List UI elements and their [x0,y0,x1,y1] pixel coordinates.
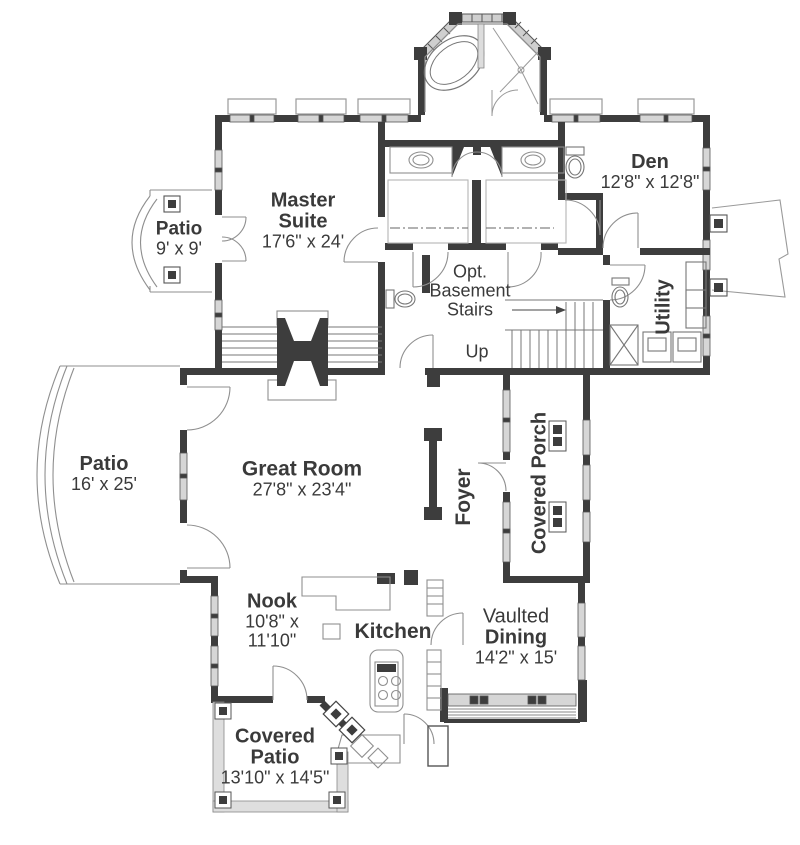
floor-plan: Patio 9' x 9' Master Suite 17'6" x 24' D… [0,0,800,845]
room-label-patio-large: Patio 16' x 25' [44,454,164,494]
entry-porch-structure [710,200,788,297]
stairs-up-label: Up [457,342,497,361]
room-label-dining: Vaulted Dining 14'2" x 15' [462,606,570,667]
room-label-opt-basement-stairs: Opt. Basement Stairs [422,262,518,319]
room-label-master-suite: Master Suite 17'6" x 24' [248,190,358,251]
room-label-covered-patio: Covered Patio 13'10" x 14'5" [209,726,341,787]
room-label-utility: Utility [653,279,674,335]
porch-posts [549,421,566,532]
floor-plan-drawing [0,0,800,845]
fireplace [222,311,382,400]
dining-deck-lines [448,709,576,718]
room-label-patio-small: Patio 9' x 9' [134,219,224,258]
roof-eaves [228,99,694,114]
room-label-kitchen: Kitchen [333,621,453,643]
room-label-den: Den 12'8" x 12'8" [580,152,720,192]
room-label-great-room: Great Room 27'8" x 23'4" [217,458,387,499]
master-bath-bay [414,12,551,116]
room-label-covered-porch: Covered Porch [529,412,550,554]
stairs [505,300,603,368]
room-label-nook: Nook 10'8" x 11'10" [226,591,318,650]
room-label-foyer: Foyer [453,468,475,525]
